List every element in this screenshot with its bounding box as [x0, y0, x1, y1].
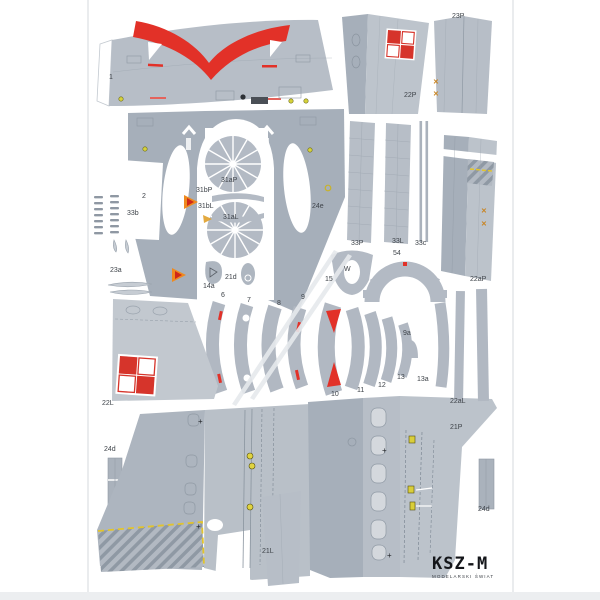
part-label-31aL: 31aL	[223, 214, 239, 222]
insignia-checkerboard-22P	[385, 28, 417, 60]
part-label-33b: 33b	[127, 210, 139, 218]
bottom-middle-strip	[262, 491, 301, 586]
part-label-2: 2	[142, 193, 146, 201]
plus-mark: +	[382, 446, 387, 455]
part-label-31bP: 31bP	[196, 187, 212, 195]
part-label-7: 7	[247, 297, 251, 305]
part-24d-right-shape	[479, 459, 494, 509]
part-label-12: 12	[378, 382, 386, 390]
part-label-9: 9	[301, 294, 305, 302]
part-23P-shape	[434, 16, 492, 114]
part-label-54: 54	[393, 250, 401, 258]
part-label-22aL: 22aL	[450, 398, 466, 406]
insignia-checkerboard-22L	[115, 354, 158, 397]
part-label-33L: 33L	[392, 238, 404, 246]
part-54-shape	[363, 262, 447, 302]
part-label-33c: 33c	[415, 240, 426, 248]
part-33P-shape	[347, 121, 375, 243]
part-label-11: 11	[357, 387, 364, 395]
part-22aP-shape	[441, 135, 497, 281]
part-label-13a: 13a	[417, 376, 429, 384]
part-22aL-strips	[454, 289, 489, 401]
part-label-1: 1	[109, 74, 113, 82]
part-22L-shape	[112, 299, 218, 401]
plus-mark: +	[387, 551, 392, 560]
publisher-logo: KSZ-M MODELARSKI ŚWIAT	[432, 556, 562, 580]
part-label-24d-right: 24d	[478, 506, 490, 514]
segment-12	[386, 318, 392, 381]
plus-mark: +	[198, 417, 203, 426]
part-label-24d-left: 24d	[104, 446, 116, 454]
part-14a-shape	[205, 261, 222, 284]
glue-cross-mark: ✕	[433, 91, 439, 98]
sheet-artwork: ✕ ✕ ✕ ✕ + + + +	[0, 0, 600, 600]
part-label-21P: 21P	[450, 424, 462, 432]
part-label-6: 6	[221, 292, 225, 300]
part-label-23a: 23a	[110, 267, 122, 275]
publisher-tagline: MODELARSKI ŚWIAT	[432, 574, 562, 580]
papercraft-sheet-scan: ✕ ✕ ✕ ✕ + + + + 1 2 22P 23P 33b 31aP 31b…	[0, 0, 600, 600]
part-33c-shape	[420, 121, 429, 242]
part-label-24e: 24e	[312, 203, 324, 211]
part-label-8: 8	[277, 300, 281, 308]
fan-31aL	[207, 202, 263, 258]
segment-11	[369, 313, 376, 385]
part-label-13: 13	[397, 374, 405, 382]
glue-cross-mark: ✕	[433, 79, 439, 86]
part-21d-shape	[241, 263, 255, 285]
part-label-22P: 22P	[404, 92, 416, 100]
part-label-15: 15	[325, 276, 333, 284]
part-label-14a: 14a	[203, 283, 215, 291]
glue-cross-mark: ✕	[481, 208, 487, 215]
part-label-W: W	[344, 266, 351, 274]
part-label-22L: 22L	[102, 400, 114, 408]
part-label-31bL: 31bL	[198, 203, 214, 211]
part-label-23P: 23P	[452, 13, 464, 21]
part-label-9a: 9a	[403, 330, 411, 338]
part-1-shape	[97, 20, 333, 106]
part-21P-shape	[308, 396, 497, 578]
part-label-31aP: 31aP	[221, 177, 237, 185]
part-label-10: 10	[331, 391, 339, 399]
segment-10	[351, 309, 358, 388]
part-33L-shape	[384, 123, 411, 244]
part-label-33P: 33P	[351, 240, 363, 248]
part-label-21L: 21L	[262, 548, 274, 556]
segment-13a	[440, 303, 444, 387]
plus-mark: +	[196, 522, 201, 531]
part-label-21d: 21d	[225, 274, 237, 282]
glue-cross-mark: ✕	[481, 221, 487, 228]
publisher-logo-text: KSZ-M	[432, 556, 562, 573]
part-label-22aP: 22aP	[470, 276, 486, 284]
